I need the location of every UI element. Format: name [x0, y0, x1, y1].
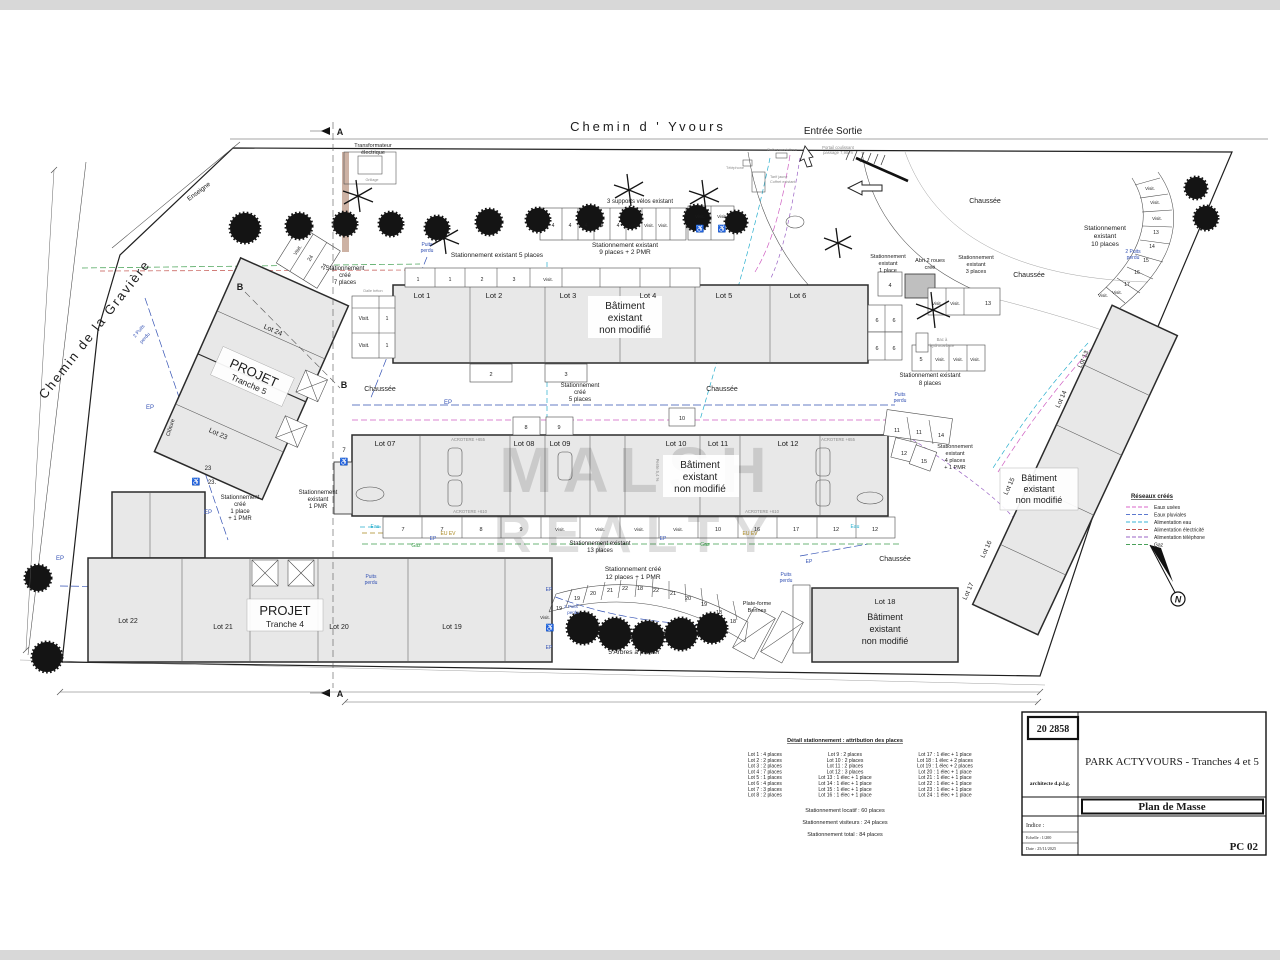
stall-number: 16 [1134, 270, 1140, 276]
stall-number: Visit. [555, 527, 565, 532]
b1-lot: Lot 2 [486, 291, 503, 300]
acrotere-label: ACROTERE +655 [451, 437, 486, 442]
detail-summary: Stationnement locatif : 60 places [805, 808, 885, 814]
detail-cell: Lot 16 : 1 élec + 1 place [818, 793, 871, 799]
stall-number: 10 [715, 527, 721, 533]
stall-number: 17 [793, 527, 799, 533]
parking-ex9-1: Stationnement existant [592, 242, 658, 249]
site-plan-sheet: MALSH REALTY Chemin d ' Yvours Chemin de… [0, 0, 1280, 960]
wheelchair-icon: ♿ [192, 477, 201, 486]
stall-number: Visit. [673, 527, 683, 532]
b2-label-1: Bâtiment [680, 460, 720, 471]
parking-cr1-3: 1 place [230, 509, 250, 515]
stall-number: 19 [701, 602, 707, 608]
lot18-lot: Lot 18 [875, 597, 896, 606]
stall-number: 4 [569, 223, 572, 229]
project-title: PARK ACTYVOURS - Tranches 4 et 5 [1085, 756, 1259, 768]
entrance-label: Entrée Sortie [804, 126, 863, 137]
t4-lot: Lot 21 [213, 624, 233, 631]
puits-label: perdu [365, 580, 378, 586]
parking-ex1-1: Stationnement [870, 254, 906, 260]
stall-number: 14 [1149, 244, 1155, 250]
b3-label-1: Bâtiment [1021, 473, 1057, 483]
doc-code: PC 02 [1230, 841, 1259, 853]
stall-number: 6 [875, 346, 878, 352]
gaz-label: Gaz [700, 542, 710, 548]
bennes-label-2: Bennes [748, 608, 767, 614]
architect-label: architecte d.p.l.g. [1030, 781, 1071, 787]
stall-number: 18 [637, 586, 643, 592]
indice-label: Indice : [1026, 823, 1044, 829]
stall-number: 10 [679, 416, 685, 422]
wheelchair-icon: ♿ [546, 623, 555, 632]
stall-number: Visit. [1145, 186, 1155, 191]
wheelchair-icon: ♿ [718, 224, 727, 233]
ep-label: EP [660, 536, 667, 542]
parking-cr1-4: + 1 PMR [228, 516, 252, 522]
parking-ex13-1: Stationnement existant [569, 541, 630, 547]
abri-label-1: Abri 2 roues [915, 258, 945, 264]
stall-number: 12 [833, 527, 839, 533]
stall-number: Visit. [935, 357, 945, 362]
t4-tranche: Tranche 4 [266, 619, 304, 629]
puits-label: perdu [421, 248, 434, 254]
b2-label-3: non modifié [674, 484, 726, 495]
b2-lot: Lot 11 [708, 439, 728, 448]
lot18-label-3: non modifié [862, 636, 909, 646]
parking-cr7-1: Stationnement [326, 266, 365, 272]
network-legend: Réseaux créés Eaux usées Eaux pluviales … [1126, 494, 1205, 549]
stall-number: 13 [985, 301, 991, 307]
parking-cr7-3: 7 places [334, 280, 356, 286]
b1-lot: Lot 5 [716, 291, 733, 300]
stall-number: 4 [888, 283, 891, 289]
t4-name: PROJET [259, 603, 310, 618]
stall-number: 4 [585, 223, 588, 229]
watermark: MALSH REALTY [494, 434, 782, 564]
gate-label-2: passage 7,90 m [823, 150, 853, 155]
wheelchair-icon: ♿ [696, 224, 705, 233]
stall-number: Visit. [644, 223, 654, 228]
parking-ex10-2: existant [1094, 233, 1117, 240]
stall-number: 23 [205, 466, 212, 472]
b1-lot: Lot 6 [790, 291, 807, 300]
section-a-top: A [337, 127, 344, 137]
stall-number: 13 [1153, 230, 1159, 236]
legend-item-label: Alimentation téléphone [1154, 535, 1205, 541]
bennes-label-1: Plate-forme [743, 601, 771, 607]
parking-expmr-1: Stationnement [299, 490, 338, 496]
parking-ex1-3: 1 place [879, 268, 897, 274]
parking-cr1-2: créé [234, 502, 246, 508]
section-b-left: B [237, 282, 244, 292]
b1-lot: Lot 4 [640, 291, 657, 300]
stall-number: 3 [513, 277, 516, 283]
project-number: 20 2858 [1037, 724, 1070, 735]
b1-lot: Lot 3 [560, 291, 577, 300]
boites-label: Boîtes aux lettres [767, 148, 796, 152]
bac-label-1: Bac à [937, 337, 948, 342]
stall-number: 2 [481, 277, 484, 283]
stall-number: 8 [479, 527, 482, 533]
arbres-label: 5 Arbres à planter [608, 649, 660, 656]
b3-label-3: non modifié [1016, 495, 1063, 505]
stall-number: Visit. [543, 277, 553, 282]
stall-number: Visit. [953, 357, 963, 362]
legend-item-label: Eaux usées [1154, 505, 1181, 511]
parking-ex8-1: Stationnement existant [899, 373, 960, 379]
stall-number: 22 [622, 586, 628, 592]
parking-cr5-2: créé [574, 390, 586, 396]
puits2-label: 2 Puits [564, 604, 579, 609]
page-margin-top [0, 0, 1280, 10]
stall-number: 8 [524, 425, 527, 431]
acrotere-label: ACROTERE +655 [821, 437, 856, 442]
parking-ex3-1: Stationnement [958, 255, 994, 261]
ep-label: EP [430, 536, 437, 542]
stall-number: Visit. [932, 301, 942, 306]
parking-cr5-1: Stationnement [561, 383, 600, 389]
parking-cr12-1: Stationnement créé [605, 566, 662, 573]
coffret-label-2: Coffret existant [770, 180, 796, 184]
legend-item-label: Eaux pluviales [1154, 513, 1187, 519]
puits2-label: perdu [1127, 255, 1140, 261]
stall-number: 20 [685, 596, 691, 602]
ep-label: EP [146, 405, 154, 411]
detail-summary: Stationnement visiteurs : 24 places [802, 820, 888, 826]
pente-label: Pente 5,4 % [655, 459, 660, 482]
stall-number: 12 [901, 451, 907, 457]
legend-title: Réseaux créés [1131, 494, 1174, 500]
gaz-label: Gaz [411, 543, 421, 549]
parking-cr1-1: Stationnement [221, 495, 260, 501]
stall-number: 3 [564, 372, 567, 378]
parking-expmr-2: existant [308, 497, 329, 503]
stall-number: 11 [894, 428, 900, 434]
ep-label: EP [546, 645, 553, 651]
parking-ex3-2: existant [967, 262, 986, 268]
velos-label: 3 supports vélos existant [607, 199, 673, 205]
legend-item-label: Alimentation électricité [1154, 528, 1204, 534]
abri-label-2: créé [925, 265, 936, 271]
stall-number: 5 [919, 357, 922, 363]
north-arrow: N [1150, 545, 1185, 606]
detail-summary: Stationnement total : 84 places [807, 832, 883, 838]
ep-label: EP [806, 559, 813, 565]
stall-number: 1 [417, 277, 420, 283]
puits-label: perdu [894, 398, 907, 404]
lot18-label-2: existant [869, 624, 901, 634]
parking-cr5-3: 5 places [569, 397, 591, 403]
parking-expmr-3: 1 PMR [309, 504, 328, 510]
stall-number: Visit. [634, 527, 644, 532]
stall-number: 14 [938, 433, 944, 439]
stall-number: Visit. [1152, 216, 1162, 221]
dalle-label: Dalle béton [363, 289, 382, 293]
puits-label: perdu [780, 578, 793, 584]
b1-label-1: Bâtiment [605, 301, 645, 312]
stall-number: 12 [872, 527, 878, 533]
vtable-cell: 1 [386, 316, 389, 322]
parking-ex4-2: existant [946, 451, 965, 457]
ep-label: EP [204, 510, 212, 516]
stall-number: 20 [590, 591, 596, 597]
plan-drawing: MALSH REALTY Chemin d ' Yvours Chemin de… [0, 0, 1280, 960]
stall-number: Visit. [629, 223, 639, 228]
puits2-label: perdu [567, 610, 579, 615]
date-label: Date : 25/11/2025 [1026, 846, 1056, 851]
echelle-label: Echelle : 1/200 [1026, 835, 1051, 840]
stall-pmr: Visit. [717, 214, 727, 219]
parking-ex5: Stationnement existant 5 places [451, 252, 544, 259]
b3-label-2: existant [1023, 484, 1055, 494]
vtable-cell: Visit. [359, 316, 370, 322]
b2-lot: Lot 07 [375, 439, 396, 448]
stall-number: 11 [916, 430, 922, 436]
stall-number: 4 [552, 223, 555, 229]
stall-number: Visit. [595, 527, 605, 532]
parking-ex10-3: 10 places [1091, 241, 1120, 248]
stall-number: Visit. [1112, 290, 1122, 295]
parking-ex8-2: 8 places [919, 381, 941, 387]
stall-number: Visit. [970, 357, 980, 362]
acrotere-label: ACROTERE +610 [745, 509, 780, 514]
b2-lot: Lot 08 [514, 439, 535, 448]
parking-cr12-2: 12 places + 1 PMR [605, 574, 660, 581]
stall-pmr: Visit. [695, 214, 705, 219]
t4-lot: Lot 20 [329, 624, 349, 631]
parking-ex4-4: + 1 PMR [944, 465, 966, 471]
stall-number: 18 [730, 619, 736, 625]
t4-lot: Lot 19 [442, 624, 462, 631]
chaussee-label: Chaussée [1013, 272, 1045, 279]
stall-number: 15 [1143, 258, 1149, 264]
section-b-mid: B [341, 380, 348, 390]
title-block: 20 2858 architecte d.p.l.g. PARK ACTYVOU… [1022, 712, 1266, 855]
lot18-label-1: Bâtiment [867, 612, 903, 622]
coffret-label-1: Tarif jaune [770, 175, 788, 179]
stall-number: 21 [607, 588, 613, 594]
transformer-label-1: Transformateur [354, 143, 392, 149]
b1-lot: Lot 1 [414, 291, 431, 300]
bac-label-2: hydrocarbure [930, 343, 955, 348]
ep-label: EP [444, 400, 452, 406]
chaussee-label: Chaussée [706, 386, 738, 393]
stall-number: 21 [670, 591, 676, 597]
stall-number: 17 [1124, 282, 1130, 288]
parking-cr7-2: créé [339, 273, 351, 279]
stall-number: 6 [875, 318, 878, 324]
stall-number: 9 [519, 527, 522, 533]
acrotere-label: ACROTERE +610 [453, 509, 488, 514]
stall-number: 23. [208, 480, 217, 486]
transformer-label-2: électrique [361, 150, 385, 156]
parking-ex13-2: 13 places [587, 548, 613, 554]
stall-number: 2 [489, 372, 492, 378]
stall-number: 19 [556, 606, 562, 612]
chaussee-label: Chaussée [364, 386, 396, 393]
b2-lot: Lot 10 [666, 439, 687, 448]
page-margin-bottom [0, 950, 1280, 960]
t4-lot: Lot 22 [118, 618, 138, 625]
detail-title: Détail stationnement : attribution des p… [787, 738, 903, 744]
stall-number: Visit. [1098, 293, 1108, 298]
detail-cell: Lot 8 : 2 places [748, 793, 782, 799]
stall-number: 19 [574, 596, 580, 602]
chaussee-label: Chaussée [969, 198, 1001, 205]
stall-number: 15 [921, 459, 927, 465]
parking-ex9-2: 9 places + 2 PMR [599, 249, 651, 256]
stall-number: 4 [601, 223, 604, 229]
stall-number: 9 [557, 425, 560, 431]
stall-number: 4 [617, 223, 620, 229]
stall-number: 6 [892, 346, 895, 352]
legend-item-label: Alimentation eau [1154, 520, 1191, 526]
parking-ex1-2: existant [879, 261, 898, 267]
b2-lot: Lot 09 [550, 439, 571, 448]
parking-ex4-3: 4 places [945, 458, 966, 464]
euev-label: EU EV [742, 531, 758, 537]
stall-number: Visit. [658, 223, 668, 228]
stall-number: 1 [449, 277, 452, 283]
stall-number: Visit. [540, 615, 550, 620]
ep-label: EP [56, 556, 64, 562]
b1-label-3: non modifié [599, 325, 651, 336]
b2-lot: Lot 12 [778, 439, 799, 448]
vtable-cell: Visit. [359, 343, 370, 349]
grillage-label: Grillage [365, 178, 378, 182]
parking-ex10-1: Stationnement [1084, 225, 1126, 232]
detail-stationnement: Détail stationnement : attribution des p… [748, 738, 973, 838]
watermark-line2: REALTY [494, 506, 782, 564]
telephone-label: Téléphone [726, 166, 744, 170]
eau-label: Eau [371, 524, 380, 530]
north-label: N [1175, 595, 1182, 605]
b2-label-2: existant [683, 472, 718, 483]
stall-number: 7 [401, 527, 404, 533]
parking-ex4-1: Stationnement [937, 444, 973, 450]
parking-ex3-3: 3 places [966, 269, 987, 275]
euev-label: EU EV [440, 531, 456, 537]
ep-label: EP [546, 587, 553, 593]
wheelchair-icon: ♿ [340, 457, 349, 466]
detail-cell: Lot 24 : 1 élec + 1 place [918, 793, 971, 799]
stall-number: 18 [716, 610, 722, 616]
chaussee-label: Chaussée [879, 556, 911, 563]
vtable-cell: 1 [386, 343, 389, 349]
stall-number: 6 [892, 318, 895, 324]
street-top-label: Chemin d ' Yvours [570, 119, 726, 134]
stall-number: 22 [653, 588, 659, 594]
section-a-bottom: A [337, 689, 344, 699]
stall-number: Visit. [950, 301, 960, 306]
doc-title: Plan de Masse [1138, 801, 1205, 813]
eau-label: Eau [851, 524, 860, 530]
b1-label-2: existant [608, 313, 643, 324]
stall-number: Visit. [1150, 200, 1160, 205]
